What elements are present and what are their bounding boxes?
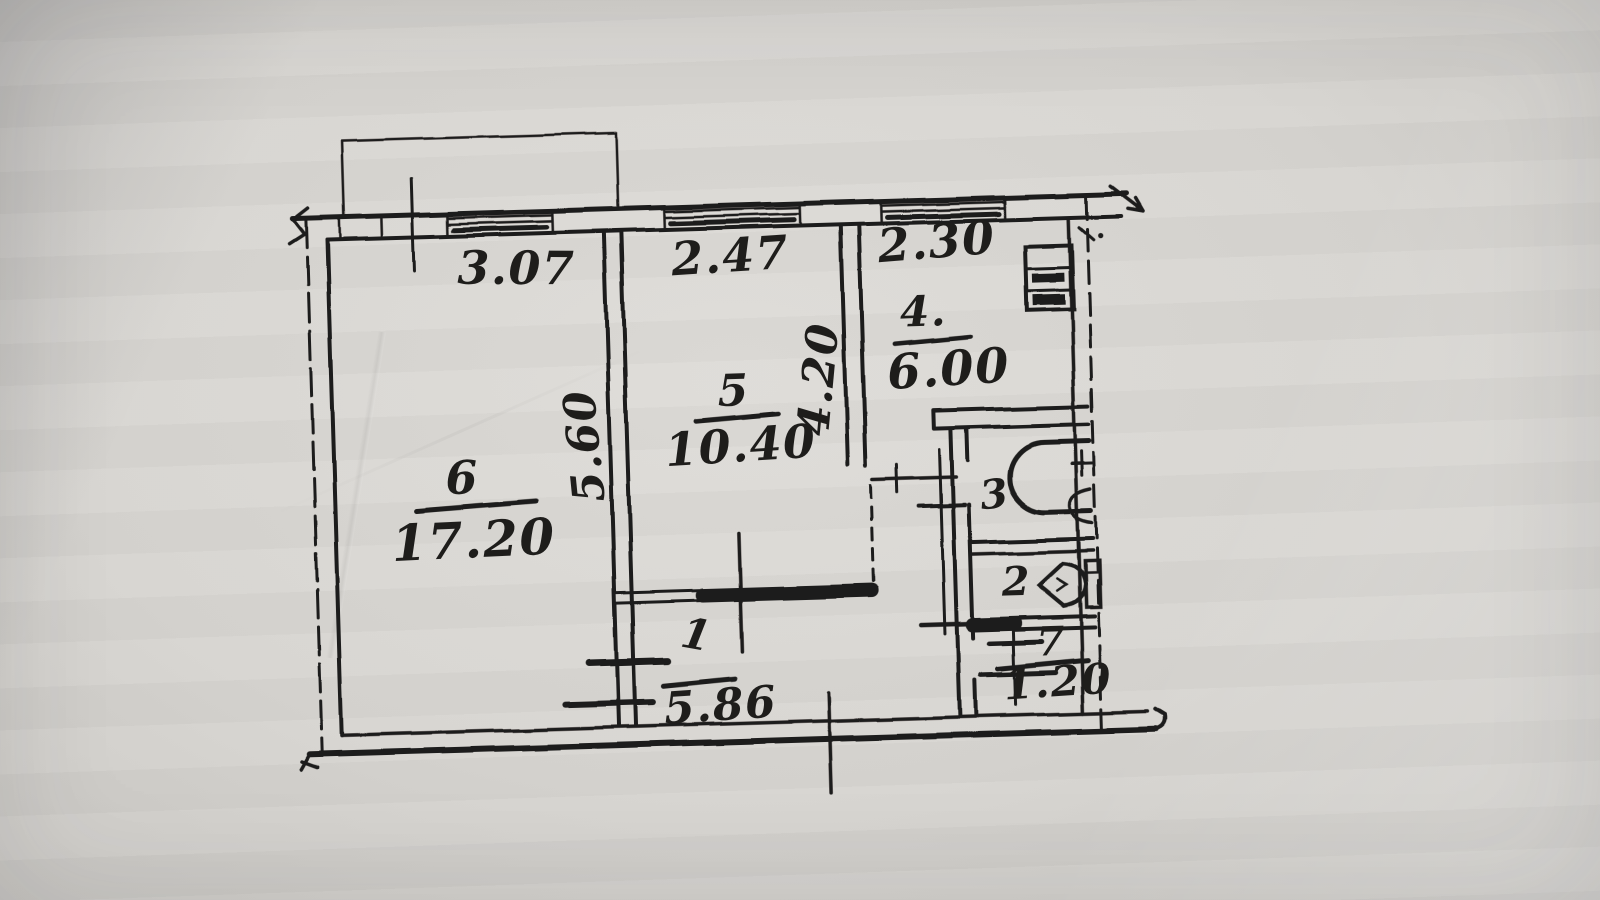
toilet-icon bbox=[1039, 561, 1100, 609]
dimension-tick bbox=[411, 179, 414, 271]
bathtub-icon bbox=[1008, 441, 1093, 513]
wall-arrow-icon bbox=[1110, 185, 1143, 212]
room-4-number-label: 4. bbox=[899, 286, 947, 336]
room-2-number-label: 2 bbox=[1000, 558, 1032, 606]
dim-kitchen-width-label: 2.30 bbox=[874, 210, 997, 274]
wall-end-mark bbox=[1155, 709, 1165, 729]
dim-room6-depth-label: 5.60 bbox=[554, 387, 616, 505]
room-5-number-label: 5 bbox=[717, 365, 751, 417]
room-6-number-label: 6 bbox=[445, 450, 480, 505]
room-4-area-label: 6.00 bbox=[885, 337, 1011, 401]
room-6-area-label: 17.20 bbox=[390, 507, 557, 574]
door-opening bbox=[871, 486, 874, 582]
dim-room5-width-label: 2.47 bbox=[668, 225, 790, 287]
sink-icon bbox=[1070, 489, 1092, 524]
stove-icon bbox=[1026, 245, 1074, 310]
scanned-floorplan-photo: 3.07 2.47 2.30 5.60 4.20 6 17.20 5 10.40… bbox=[0, 0, 1600, 900]
dimension-tick bbox=[590, 661, 668, 663]
room-1-area-label: 5.86 bbox=[662, 676, 778, 734]
room-3-number-label: 3 bbox=[977, 469, 1012, 519]
room-5-area-label: 10.40 bbox=[663, 414, 818, 478]
dimension-tick bbox=[739, 534, 742, 651]
dimension-tick bbox=[565, 702, 653, 705]
room-1-number-label: 1 bbox=[677, 608, 716, 662]
room-7-area-label: 1.20 bbox=[1002, 654, 1113, 710]
interior-wall-4-3 bbox=[933, 406, 1088, 429]
dimension-tick bbox=[829, 693, 832, 793]
labels: 3.07 2.47 2.30 5.60 4.20 6 17.20 5 10.40… bbox=[382, 207, 1114, 743]
interior-wall-5-hall bbox=[613, 486, 876, 656]
dim-room6-width-label: 3.07 bbox=[457, 241, 575, 296]
floorplan-drawing: 3.07 2.47 2.30 5.60 4.20 6 17.20 5 10.40… bbox=[0, 0, 1600, 900]
